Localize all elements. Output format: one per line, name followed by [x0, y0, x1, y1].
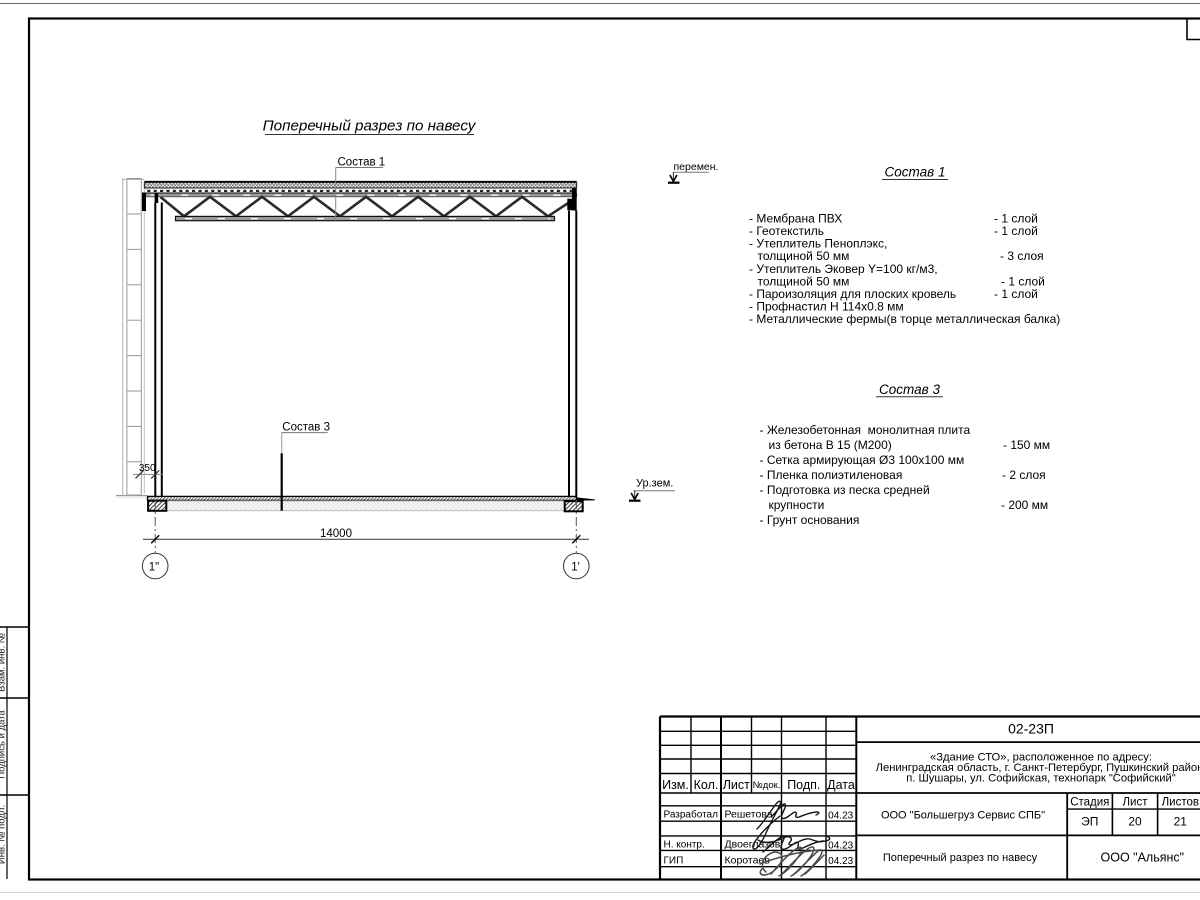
svg-text:20: 20: [1128, 815, 1142, 829]
svg-text:Инв. № подл.: Инв. № подл.: [0, 805, 8, 864]
svg-text:- Сетка армирующая Ø3 100х100: - Сетка армирующая Ø3 100х100 мм: [760, 453, 965, 467]
svg-text:Кол.: Кол.: [694, 778, 719, 792]
svg-text:Дата: Дата: [827, 778, 855, 792]
svg-text:- 2 слоя: - 2 слоя: [1002, 468, 1046, 482]
svg-text:ООО "Большегруз Сервис СПБ": ООО "Большегруз Сервис СПБ": [881, 810, 1045, 822]
svg-text:- Подготовка из песка средней: - Подготовка из песка средней: [760, 483, 930, 497]
svg-text:02-23П: 02-23П: [1008, 721, 1054, 737]
svg-text:Стадия: Стадия: [1070, 797, 1109, 809]
svg-text:Разработал: Разработал: [664, 809, 719, 821]
svg-text:1": 1": [149, 562, 159, 574]
svg-text:04.23: 04.23: [828, 841, 853, 852]
svg-text:Ур.зем.: Ур.зем.: [636, 478, 673, 490]
svg-text:- Грунт основания: - Грунт основания: [760, 513, 860, 527]
svg-text:- Пленка полиэтиленовая: - Пленка полиэтиленовая: [760, 468, 903, 482]
svg-text:Состав 1: Состав 1: [338, 156, 386, 168]
svg-text:ГИП: ГИП: [664, 856, 684, 867]
svg-text:1': 1': [571, 562, 580, 574]
svg-text:п. Шушары, ул. Софийская, техн: п. Шушары, ул. Софийская, технопарк "Соф…: [906, 772, 1176, 784]
svg-text:- 1 слой: - 1 слой: [994, 287, 1038, 301]
svg-text:Поперечный разрез по навесу: Поперечный разрез по навесу: [263, 118, 477, 135]
svg-text:- Железобетонная монолитная п: - Железобетонная монолитная плита: [760, 423, 971, 437]
svg-text:Состав 3: Состав 3: [879, 382, 940, 397]
svg-text:Взам. инв. №: Взам. инв. №: [0, 633, 8, 692]
svg-text:14000: 14000: [320, 528, 352, 540]
svg-text:ООО "Альянс": ООО "Альянс": [1101, 851, 1185, 865]
svg-text:Подпись и дата: Подпись и дата: [0, 710, 8, 779]
svg-text:из бетона В 15 (М200): из бетона В 15 (М200): [769, 438, 892, 452]
svg-text:21: 21: [1174, 815, 1188, 829]
svg-text:№док.: №док.: [753, 780, 781, 791]
svg-text:Поперечный разрез по навесу: Поперечный разрез по навесу: [883, 852, 1038, 864]
svg-text:Изм.: Изм.: [662, 778, 689, 792]
svg-text:- 3 слоя: - 3 слоя: [1000, 249, 1044, 263]
svg-text:ЭП: ЭП: [1081, 815, 1098, 829]
svg-text:- 1 слой: - 1 слой: [994, 224, 1038, 238]
svg-text:перемен.: перемен.: [674, 161, 719, 173]
svg-text:- 150 мм: - 150 мм: [1003, 438, 1050, 452]
svg-text:04.23: 04.23: [828, 811, 853, 822]
svg-text:- Металлические фермы(в торце: - Металлические фермы(в торце металличес…: [749, 312, 1060, 326]
svg-text:Н. контр.: Н. контр.: [664, 840, 705, 851]
svg-text:04.23: 04.23: [828, 856, 853, 867]
svg-text:Состав 3: Состав 3: [282, 421, 330, 433]
svg-text:Подп.: Подп.: [787, 778, 820, 792]
svg-text:Листов: Листов: [1162, 797, 1199, 809]
svg-text:Состав 1: Состав 1: [885, 165, 946, 180]
svg-text:- 200 мм: - 200 мм: [1001, 498, 1048, 512]
svg-text:Лист: Лист: [723, 778, 750, 792]
svg-text:Лист: Лист: [1123, 797, 1149, 809]
svg-text:крупности: крупности: [769, 498, 825, 512]
